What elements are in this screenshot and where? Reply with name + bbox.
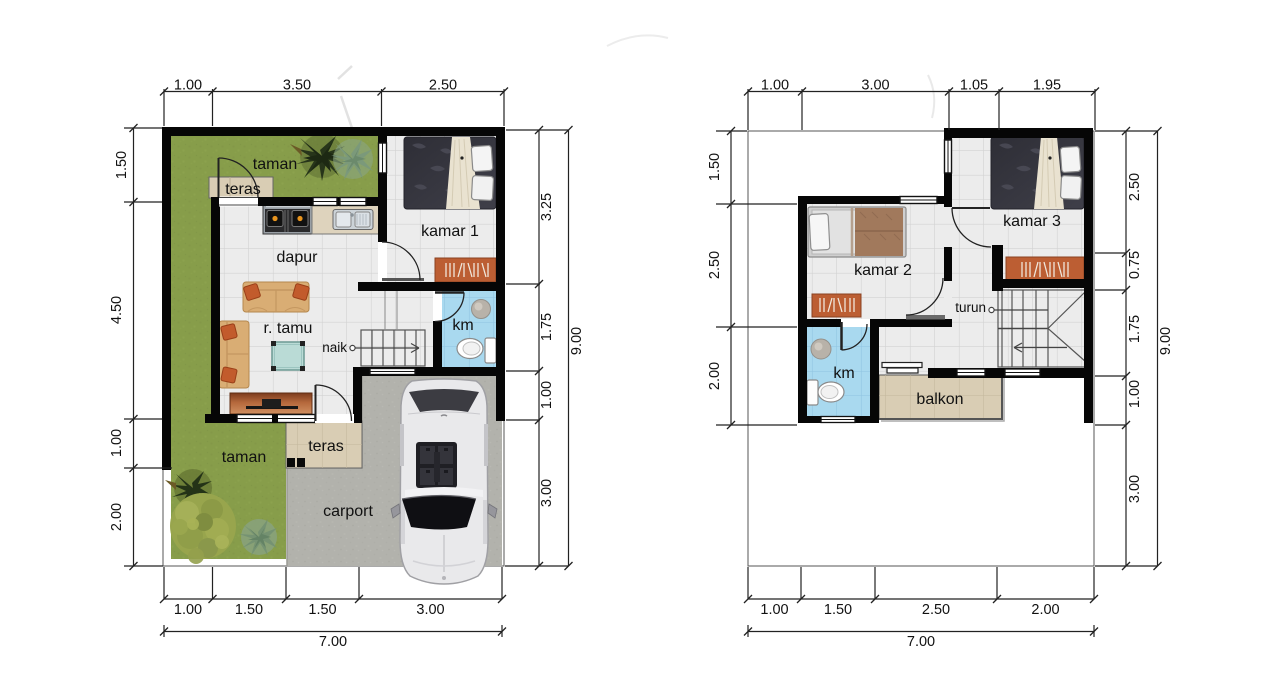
svg-text:2.00: 2.00 <box>109 503 125 531</box>
svg-text:1.95: 1.95 <box>1033 78 1061 94</box>
svg-text:3.00: 3.00 <box>861 78 889 94</box>
svg-text:3.25: 3.25 <box>539 193 555 221</box>
svg-text:3.50: 3.50 <box>283 78 311 94</box>
svg-text:1.00: 1.00 <box>760 602 788 618</box>
svg-text:kamar 1: kamar 1 <box>421 223 479 240</box>
svg-text:1.50: 1.50 <box>824 602 852 618</box>
svg-text:naik: naik <box>322 340 347 355</box>
svg-text:dapur: dapur <box>277 249 319 266</box>
svg-text:3.00: 3.00 <box>416 602 444 618</box>
svg-text:1.00: 1.00 <box>539 381 555 409</box>
svg-text:teras: teras <box>308 438 344 455</box>
svg-text:2.50: 2.50 <box>922 602 950 618</box>
svg-text:9.00: 9.00 <box>1158 327 1174 355</box>
svg-text:1.00: 1.00 <box>1127 380 1143 408</box>
svg-text:4.50: 4.50 <box>109 296 125 324</box>
svg-text:1.00: 1.00 <box>761 78 789 94</box>
svg-text:2.50: 2.50 <box>429 78 457 94</box>
svg-text:1.05: 1.05 <box>960 78 988 94</box>
svg-text:carport: carport <box>323 503 373 520</box>
svg-text:balkon: balkon <box>916 391 963 408</box>
svg-text:2.00: 2.00 <box>707 362 723 390</box>
svg-text:1.50: 1.50 <box>707 153 723 181</box>
svg-text:3.00: 3.00 <box>1127 475 1143 503</box>
svg-text:kamar 2: kamar 2 <box>854 262 912 279</box>
svg-text:1.75: 1.75 <box>539 313 555 341</box>
svg-text:km: km <box>833 365 854 382</box>
svg-text:9.00: 9.00 <box>569 327 585 355</box>
svg-text:1.00: 1.00 <box>109 429 125 457</box>
svg-text:km: km <box>452 317 473 334</box>
svg-text:3.00: 3.00 <box>539 479 555 507</box>
svg-text:teras: teras <box>225 181 261 198</box>
svg-text:taman: taman <box>253 156 297 173</box>
svg-text:2.50: 2.50 <box>707 251 723 279</box>
svg-text:0.75: 0.75 <box>1127 251 1143 279</box>
svg-text:turun: turun <box>955 300 986 315</box>
svg-text:7.00: 7.00 <box>907 634 935 650</box>
svg-text:kamar 3: kamar 3 <box>1003 213 1061 230</box>
svg-text:1.00: 1.00 <box>174 78 202 94</box>
svg-text:7.00: 7.00 <box>319 634 347 650</box>
svg-text:1.50: 1.50 <box>308 602 336 618</box>
svg-text:2.50: 2.50 <box>1127 173 1143 201</box>
svg-text:2.00: 2.00 <box>1031 602 1059 618</box>
svg-text:1.00: 1.00 <box>174 602 202 618</box>
svg-text:taman: taman <box>222 449 266 466</box>
svg-text:1.50: 1.50 <box>235 602 263 618</box>
svg-text:1.50: 1.50 <box>114 151 130 179</box>
svg-text:1.75: 1.75 <box>1127 315 1143 343</box>
svg-text:r. tamu: r. tamu <box>264 320 313 337</box>
